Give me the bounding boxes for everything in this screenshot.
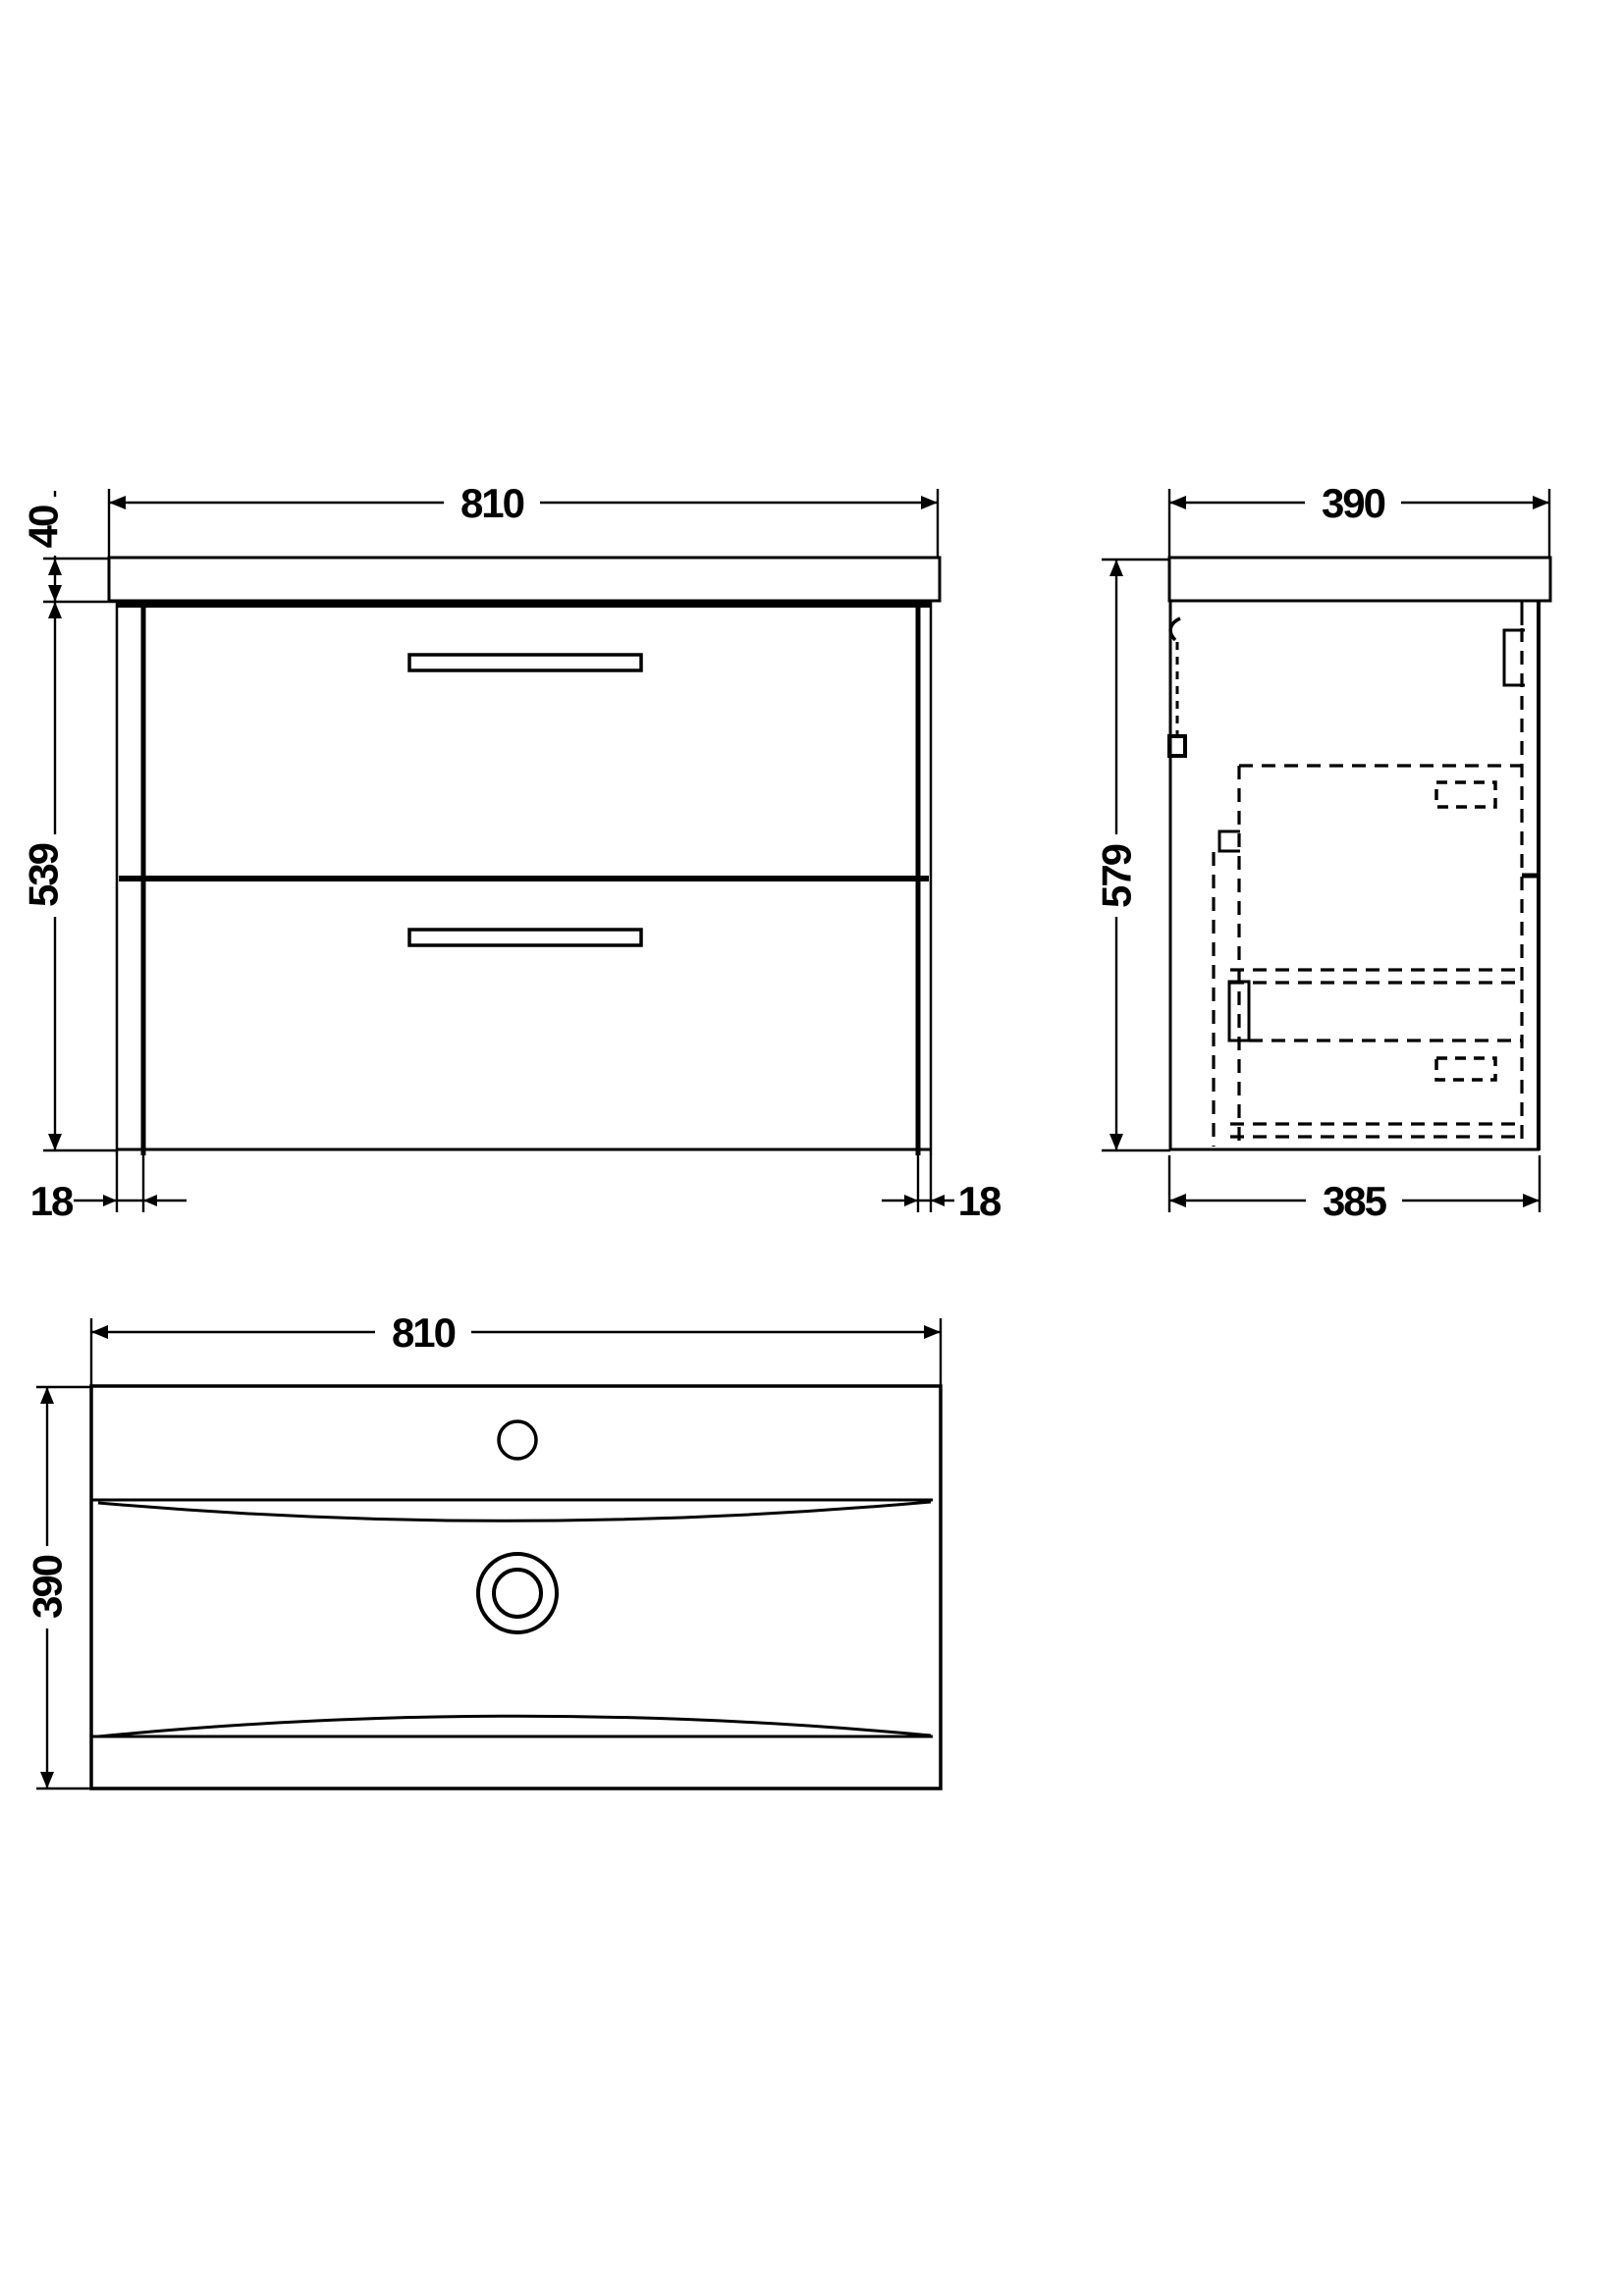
side-worktop xyxy=(1169,558,1550,601)
arrowhead xyxy=(109,496,126,509)
front-width-label: 810 xyxy=(460,480,524,526)
arrowhead xyxy=(48,1134,62,1150)
front-dim-height: 539 xyxy=(21,602,120,1150)
arrowhead xyxy=(1523,1194,1540,1207)
side-height-label: 579 xyxy=(1094,844,1140,908)
bracket-hook xyxy=(1170,618,1180,640)
side-dim-height: 579 xyxy=(1094,560,1171,1150)
side-view: 390 579 xyxy=(1094,480,1551,1224)
front-height-label: 539 xyxy=(21,843,67,907)
tap-hole xyxy=(499,1421,536,1459)
arrowhead xyxy=(1109,560,1123,576)
front-dim-width: 810 xyxy=(109,480,938,558)
waste-hole-inner xyxy=(494,1570,541,1617)
front-dim-worktop: 40 xyxy=(21,491,110,602)
waste-hole-outer xyxy=(478,1554,557,1632)
arrowhead xyxy=(48,559,62,575)
drawer-runner-bracket xyxy=(1219,831,1240,851)
basin-back-curve xyxy=(98,1502,931,1521)
basin-outline xyxy=(91,1386,941,1789)
basin-front-curve xyxy=(98,1716,931,1736)
bottom-drawer-handle xyxy=(409,930,641,945)
side-dim-cabinet-depth: 385 xyxy=(1169,1155,1540,1224)
arrowhead xyxy=(904,1195,918,1206)
arrowhead xyxy=(931,1195,945,1206)
arrowhead xyxy=(921,496,938,509)
plan-dim-width: 810 xyxy=(91,1309,941,1386)
top-drawer-hidden-handle xyxy=(1436,782,1495,807)
top-drawer-hidden-box xyxy=(1230,766,1522,983)
arrowhead xyxy=(91,1325,108,1339)
arrowhead xyxy=(1109,1134,1123,1150)
bottom-drawer-hidden-handle xyxy=(1436,1058,1495,1080)
front-worktop xyxy=(109,558,940,601)
arrowhead xyxy=(1169,1194,1186,1207)
arrowhead xyxy=(48,585,62,602)
side-depth-label: 390 xyxy=(1322,480,1385,526)
arrowhead xyxy=(1533,496,1549,509)
front-right-panel-label: 18 xyxy=(958,1178,1001,1224)
side-cabinet-depth-label: 385 xyxy=(1323,1178,1387,1224)
top-drawer-handle xyxy=(409,655,641,670)
bottom-drawer-hidden-box xyxy=(1230,1041,1522,1137)
front-worktop-label: 40 xyxy=(21,506,67,548)
plan-dim-depth: 390 xyxy=(25,1387,92,1789)
arrowhead xyxy=(924,1325,941,1339)
side-dim-depth: 390 xyxy=(1169,480,1549,558)
arrowhead xyxy=(48,602,62,618)
vanity-technical-drawing-page: 810 40 539 xyxy=(0,0,1623,2296)
front-view: 810 40 539 xyxy=(21,480,1001,1224)
arrowhead xyxy=(1169,496,1186,509)
front-dim-left-panel: 18 xyxy=(30,1155,187,1224)
basin-plan-view: 810 390 xyxy=(25,1309,942,1789)
arrowhead xyxy=(103,1195,117,1206)
front-dim-right-panel: 18 xyxy=(882,1155,1001,1224)
plan-depth-label: 390 xyxy=(25,1555,71,1619)
front-left-panel-label: 18 xyxy=(30,1178,74,1224)
arrowhead xyxy=(40,1772,54,1789)
arrowhead xyxy=(143,1195,157,1206)
drawer-runner-block xyxy=(1229,982,1249,1041)
arrowhead xyxy=(40,1387,54,1404)
plan-width-label: 810 xyxy=(392,1309,456,1356)
vanity-technical-drawing: 810 40 539 xyxy=(0,0,1623,2296)
